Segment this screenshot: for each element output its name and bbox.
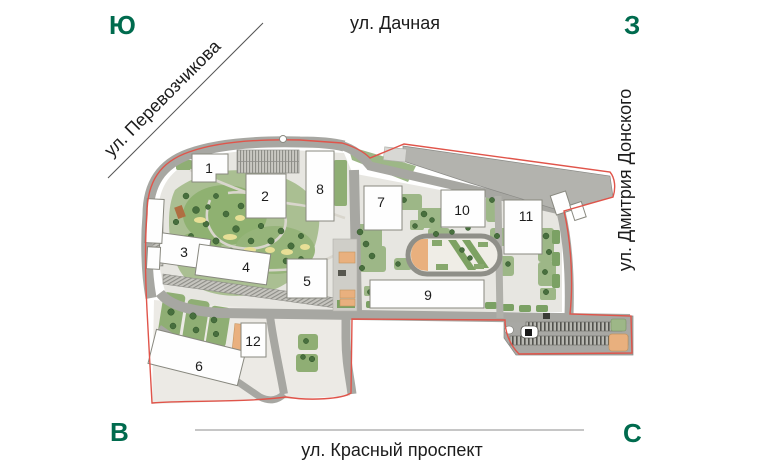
street-label-krasny-prospekt: ул. Красный проспект [262, 441, 522, 461]
compass-north-label: С [623, 420, 642, 446]
site-plan-page: { "compass": { "top_left": "Ю", "top_rig… [0, 0, 768, 475]
building-6-label: 6 [195, 358, 203, 374]
building-10-label: 10 [454, 202, 470, 218]
road-fragment [383, 147, 406, 162]
street-label-dmitriya-donskogo: ул. Дмитрия Донского [616, 70, 636, 290]
street-label-dachnaya: ул. Дачная [305, 14, 485, 34]
small-building [146, 247, 160, 270]
compass-west-label: З [624, 12, 640, 38]
building-9-label: 9 [424, 287, 432, 303]
tram-icon [521, 326, 538, 338]
building-2-label: 2 [261, 188, 269, 204]
building-1-label: 1 [205, 160, 213, 176]
building-4-label: 4 [242, 259, 250, 275]
building-12-label: 12 [245, 333, 261, 349]
building-11-label: 11 [519, 208, 534, 224]
building-3-label: 3 [180, 244, 188, 260]
building-8-label: 8 [316, 181, 324, 197]
site-map: 1 2 3 4 5 6 7 8 9 10 11 12 [0, 0, 768, 475]
compass-south-label: Ю [109, 12, 136, 38]
building-7-label: 7 [377, 194, 385, 210]
compass-east-label: В [110, 419, 129, 445]
running-track [408, 236, 500, 274]
building-5-label: 5 [303, 273, 311, 289]
gate-marker [280, 136, 287, 143]
